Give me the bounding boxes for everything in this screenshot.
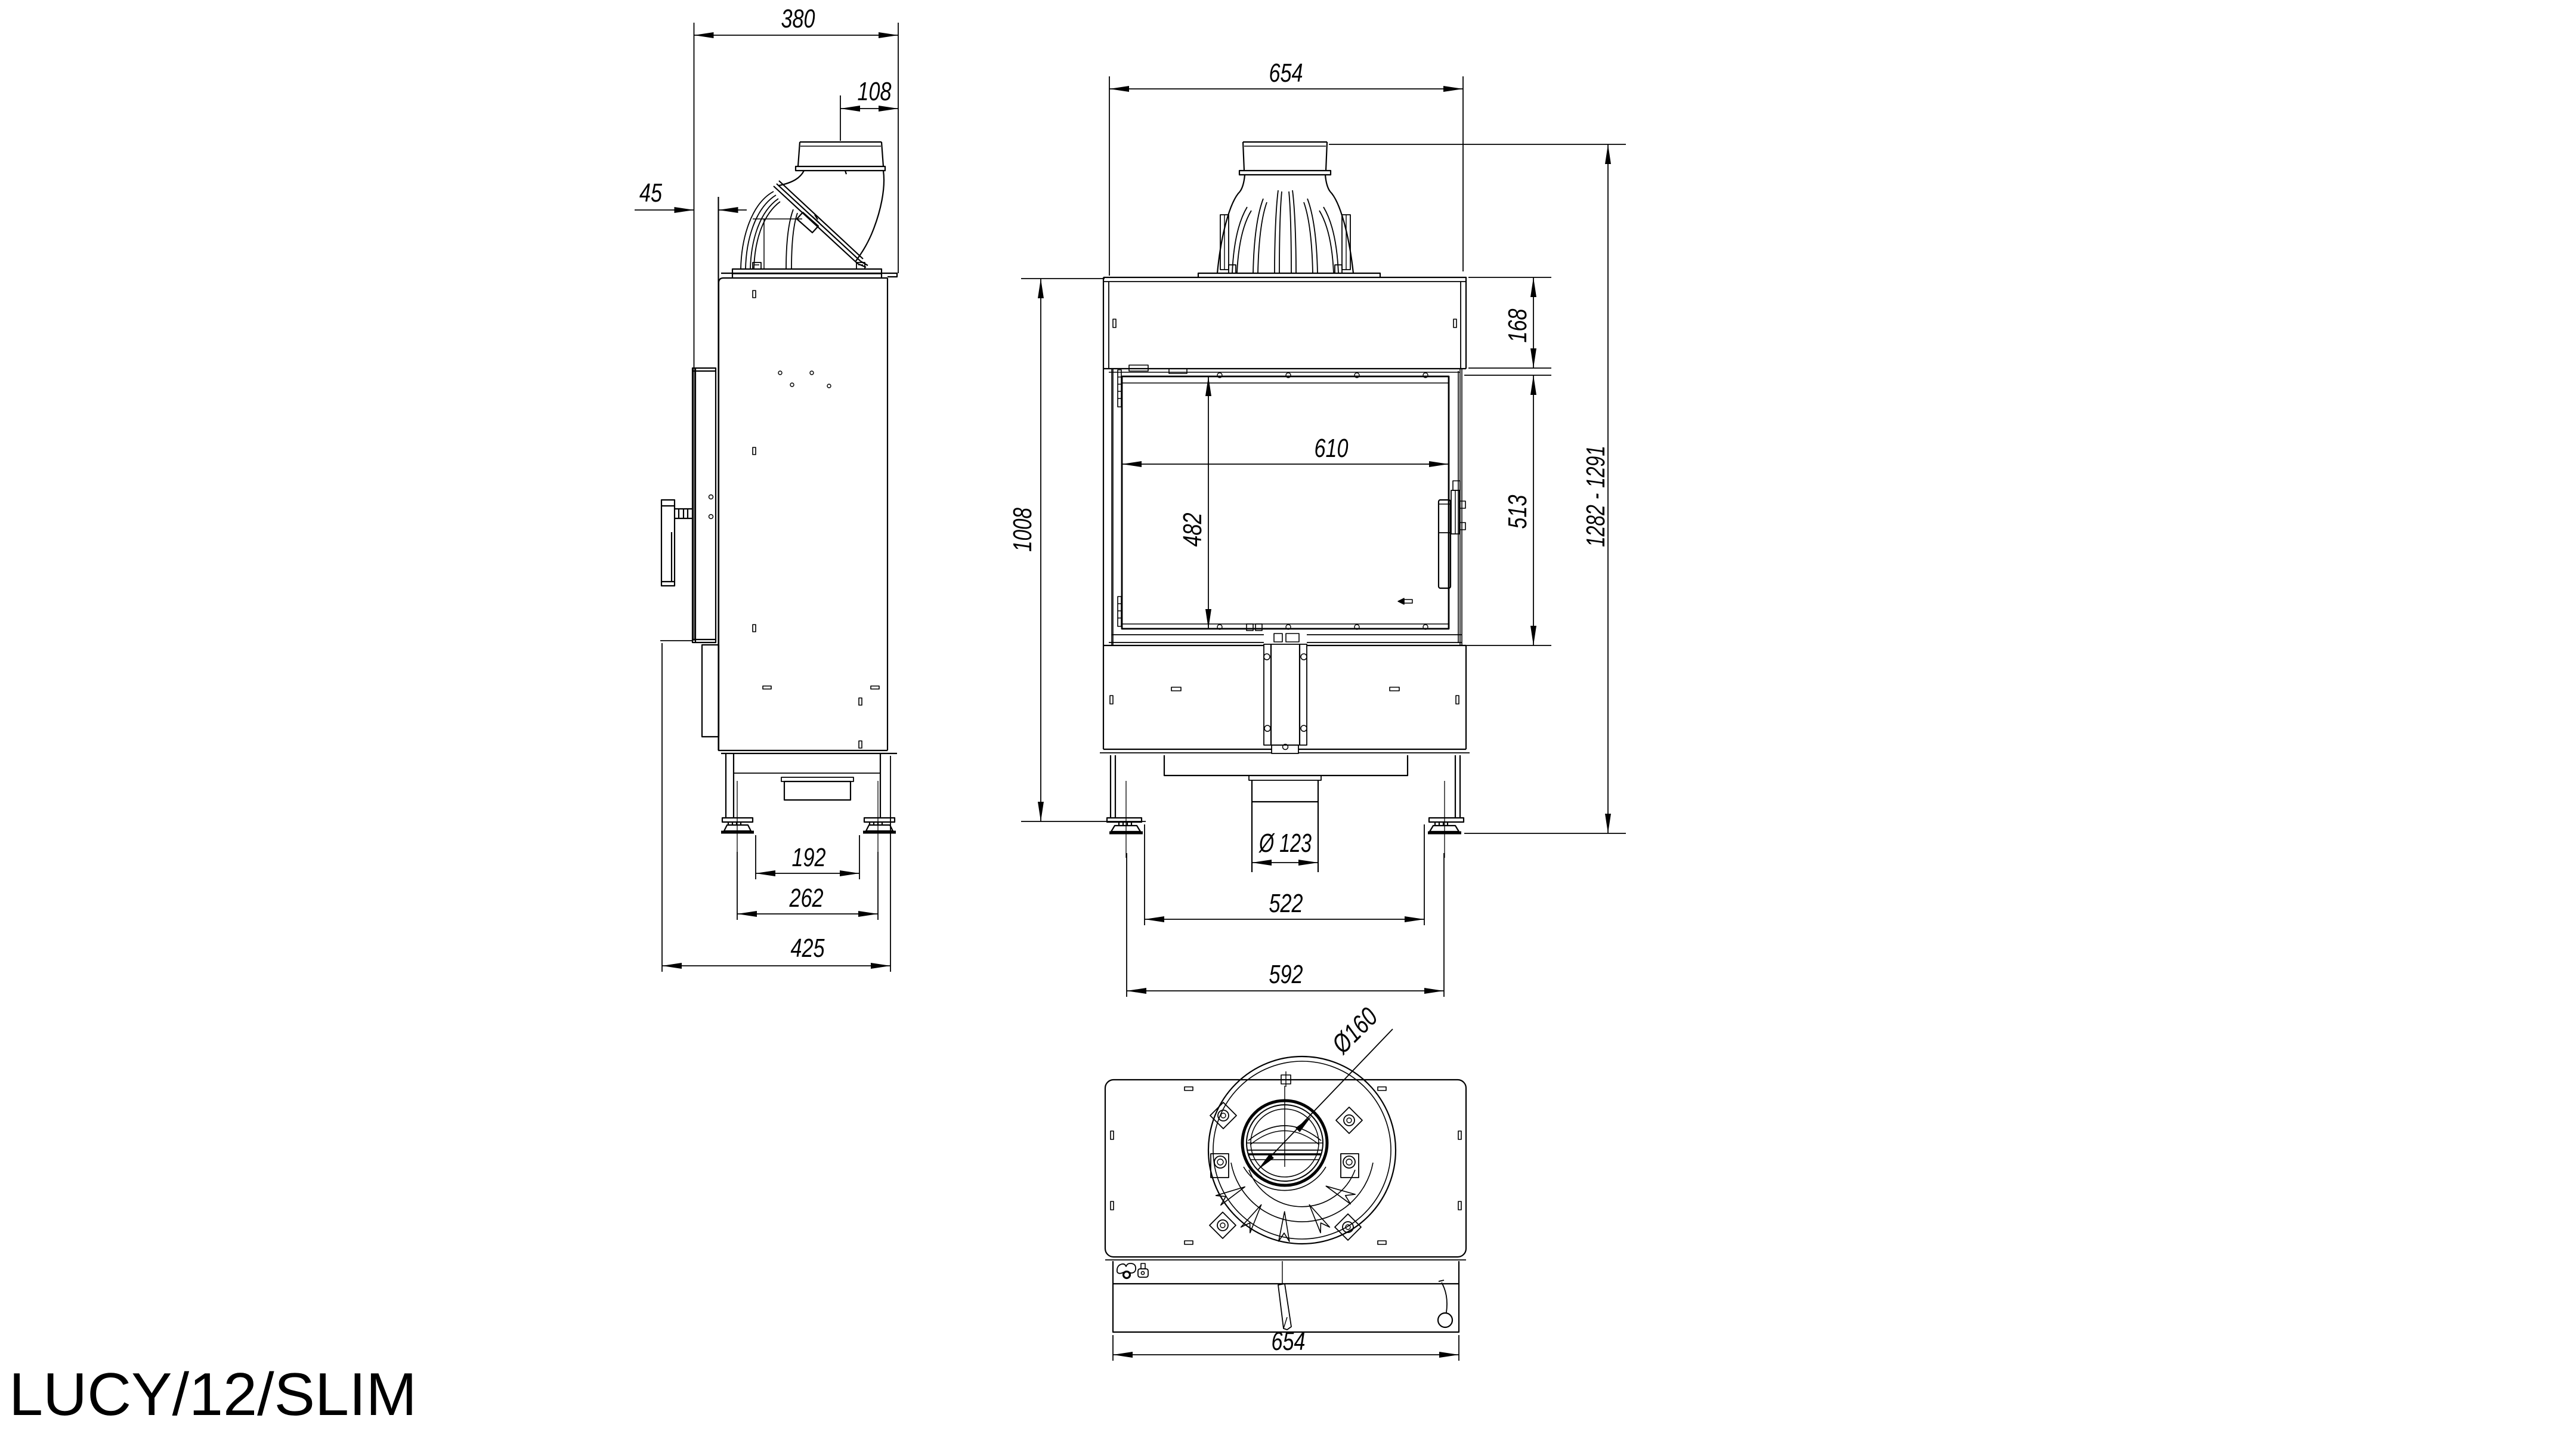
svg-text:168: 168 <box>1503 308 1532 342</box>
svg-text:192: 192 <box>792 843 826 872</box>
svg-text:482: 482 <box>1178 513 1207 547</box>
svg-text:1008: 1008 <box>1008 508 1037 552</box>
svg-text:522: 522 <box>1269 889 1303 918</box>
svg-text:654: 654 <box>1269 58 1303 88</box>
svg-text:LUCY/12/SLIM: LUCY/12/SLIM <box>9 1361 417 1428</box>
svg-text:45: 45 <box>639 178 662 208</box>
svg-text:654: 654 <box>1272 1327 1306 1356</box>
svg-text:380: 380 <box>781 4 815 33</box>
svg-text:1282 - 1291: 1282 - 1291 <box>1581 446 1610 547</box>
svg-text:Ø160: Ø160 <box>1326 1002 1384 1060</box>
svg-text:425: 425 <box>791 934 825 963</box>
svg-text:262: 262 <box>789 883 824 913</box>
svg-text:610: 610 <box>1315 434 1349 463</box>
svg-text:592: 592 <box>1269 960 1303 989</box>
svg-text:513: 513 <box>1503 495 1532 529</box>
svg-text:Ø 123: Ø 123 <box>1258 829 1312 858</box>
svg-text:108: 108 <box>858 77 892 106</box>
